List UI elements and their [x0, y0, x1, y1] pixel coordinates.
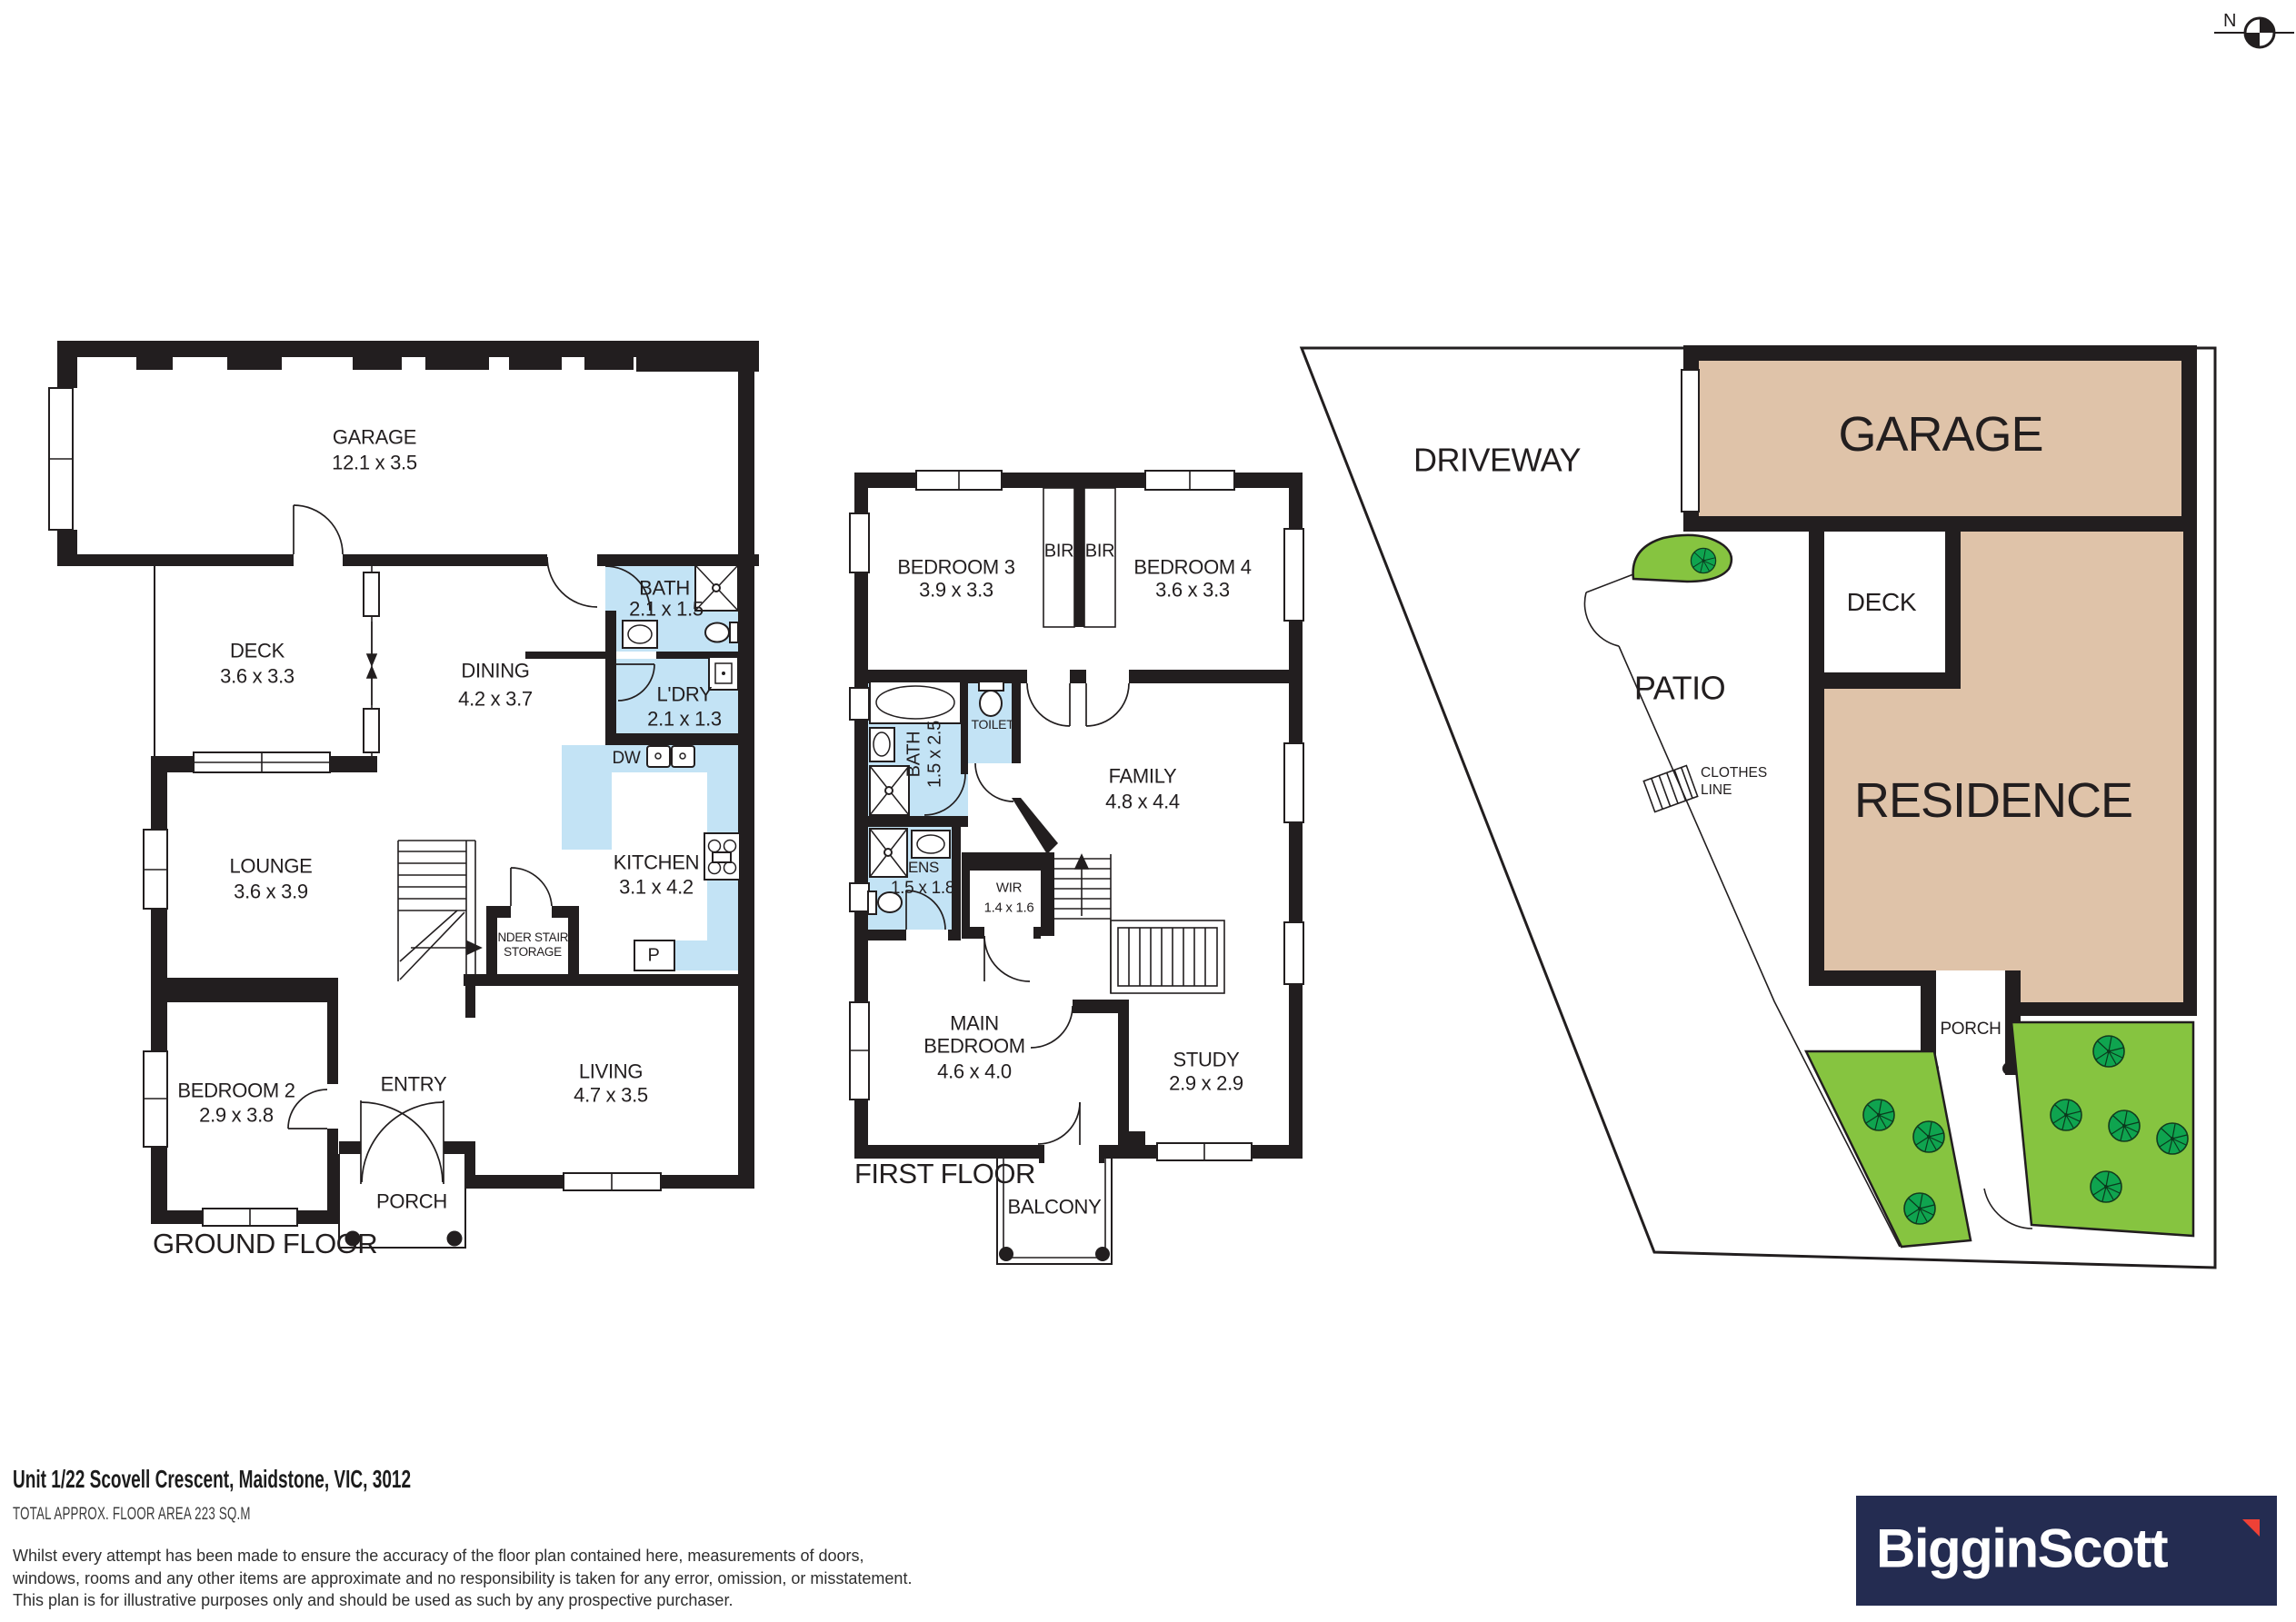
- room-label-main-bedroom: MAIN BEDROOM: [915, 1012, 1033, 1059]
- floorplan-page: GARAGE 12.1 x 3.5 DECK 3.6 x 3.3 DINING …: [0, 0, 2296, 1622]
- room-label-lounge: LOUNGE: [229, 854, 312, 877]
- room-size-bedroom2: 2.9 x 3.8: [199, 1103, 274, 1126]
- disclaimer-text: Whilst every attempt has been made to en…: [13, 1545, 912, 1612]
- room-label-family: FAMILY: [1109, 764, 1177, 787]
- room-label-laundry: L'DRY: [657, 682, 713, 705]
- room-label-deck-gf: DECK: [230, 639, 285, 662]
- room-label-balcony: BALCONY: [1007, 1195, 1101, 1218]
- site-label-deck: DECK: [1847, 588, 1917, 617]
- disclaimer-line-2: windows, rooms and any other items are a…: [13, 1567, 912, 1590]
- label-pantry: P: [647, 946, 659, 967]
- room-label-porch-gf: PORCH: [376, 1189, 447, 1212]
- room-label-study: STUDY: [1173, 1048, 1239, 1070]
- disclaimer-line-1: Whilst every attempt has been made to en…: [13, 1545, 912, 1567]
- deck-arrows: [367, 622, 376, 705]
- label-bir-left: BIR: [1044, 542, 1073, 562]
- site-label-driveway: DRIVEWAY: [1413, 441, 1581, 478]
- room-size-dining: 4.2 x 3.7: [458, 687, 533, 710]
- room-label-bath-ff: BATH: [904, 731, 925, 778]
- room-size-bath-gf: 2.1 x 1.5: [629, 597, 704, 620]
- first-floor-title: FIRST FLOOR: [854, 1158, 1035, 1190]
- gf-stairs: [398, 841, 481, 981]
- room-label-garage-gf: GARAGE: [333, 425, 416, 448]
- room-size-garage-gf: 12.1 x 3.5: [332, 451, 417, 473]
- room-size-laundry: 2.1 x 1.3: [647, 707, 722, 730]
- room-label-bath-gf: BATH: [639, 576, 690, 599]
- agency-logo-triangle-icon: [2242, 1519, 2260, 1537]
- room-size-wir: 1.4 x 1.6: [984, 900, 1034, 915]
- room-label-living: LIVING: [579, 1060, 643, 1082]
- label-dishwasher: DW: [612, 749, 640, 769]
- room-label-bedroom4: BEDROOM 4: [1133, 555, 1251, 578]
- room-size-study: 2.9 x 2.9: [1169, 1071, 1243, 1094]
- property-address: Unit 1/22 Scovell Crescent, Maidstone, V…: [13, 1465, 411, 1494]
- site-label-patio: PATIO: [1634, 669, 1725, 706]
- ground-floor-title: GROUND FLOOR: [153, 1228, 377, 1260]
- room-size-main-bedroom: 4.6 x 4.0: [937, 1060, 1012, 1082]
- room-size-deck-gf: 3.6 x 3.3: [220, 664, 294, 687]
- site-garden-bed: [1633, 535, 1732, 582]
- room-size-ens: 1.5 x 1.8: [891, 879, 954, 899]
- compass-north-label: N: [2223, 11, 2236, 32]
- agency-logo: BigginScott: [1856, 1496, 2277, 1606]
- site-label-clothes-line: CLOTHES LINE: [1701, 764, 1777, 800]
- room-label-bedroom2: BEDROOM 2: [177, 1079, 294, 1101]
- room-size-lounge: 3.6 x 3.9: [234, 880, 308, 902]
- room-size-bedroom4: 3.6 x 3.3: [1155, 578, 1230, 601]
- site-label-porch: PORCH: [1940, 1020, 2001, 1040]
- clothes-line-icon: [1643, 766, 1697, 812]
- agency-logo-text: BigginScott: [1876, 1517, 2167, 1579]
- disclaimer-line-3: This plan is for illustrative purposes o…: [13, 1589, 912, 1612]
- room-label-ens: ENS: [908, 859, 939, 877]
- room-label-kitchen: KITCHEN: [614, 851, 699, 873]
- room-label-dining: DINING: [461, 659, 529, 682]
- room-size-kitchen: 3.1 x 4.2: [619, 875, 694, 898]
- room-size-bedroom3: 3.9 x 3.3: [919, 578, 993, 601]
- ground-floor-plan: [49, 341, 759, 1248]
- room-label-toilet: TOILET: [972, 717, 1014, 731]
- label-under-stairs-storage: UNDER STAIRS STORAGE: [464, 930, 601, 960]
- ff-stairs: [1052, 854, 1224, 993]
- room-size-living: 4.7 x 3.5: [574, 1083, 648, 1106]
- room-label-wir: WIR: [996, 880, 1022, 895]
- room-size-bath-ff: 1.5 x 2.5: [925, 721, 946, 788]
- floor-area-text: TOTAL APPROX. FLOOR AREA 223 SQ.M: [13, 1505, 251, 1525]
- room-size-family: 4.8 x 4.4: [1105, 790, 1180, 812]
- room-label-bedroom3: BEDROOM 3: [897, 555, 1014, 578]
- site-label-residence: RESIDENCE: [1854, 772, 2132, 829]
- site-lawns: [1806, 1022, 2193, 1247]
- room-label-entry: ENTRY: [381, 1072, 447, 1095]
- label-bir-right: BIR: [1085, 542, 1114, 562]
- site-label-garage: GARAGE: [1838, 406, 2042, 463]
